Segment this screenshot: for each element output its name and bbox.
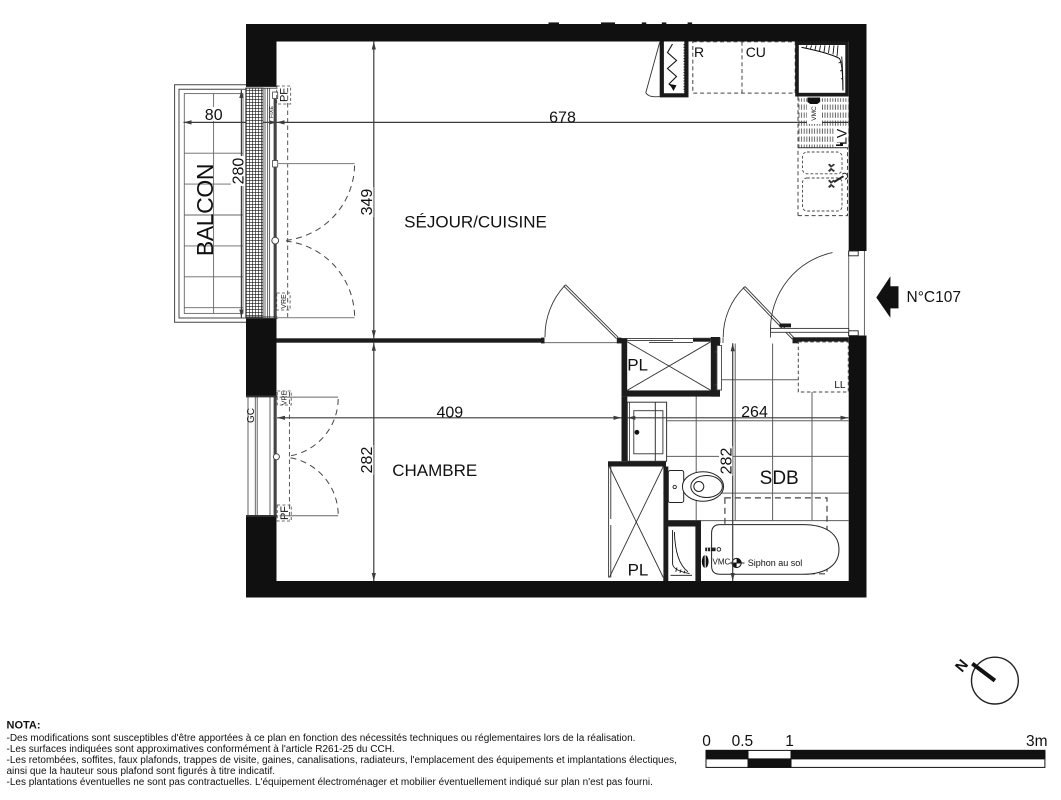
svg-text:CHAMBRE: CHAMBRE <box>392 461 477 480</box>
svg-text:-Les plantations éventuelles n: -Les plantations éventuelles ne sont pas… <box>7 777 653 788</box>
svg-text:1: 1 <box>785 733 794 750</box>
svg-text:FIXE: FIXE <box>269 106 275 119</box>
svg-text:282: 282 <box>718 448 735 475</box>
svg-text:GC: GC <box>246 408 257 423</box>
svg-text:BALCON: BALCON <box>192 164 218 256</box>
svg-text:0.5: 0.5 <box>732 733 754 750</box>
svg-text:409: 409 <box>436 404 463 421</box>
svg-text:PF: PF <box>279 88 291 102</box>
svg-text:VMC: VMC <box>811 106 818 121</box>
svg-text:SÉJOUR/CUISINE: SÉJOUR/CUISINE <box>404 212 547 231</box>
svg-text:PF: PF <box>279 506 291 520</box>
svg-text:-Des modifications sont suscep: -Des modifications sont susceptibles d'ê… <box>7 733 636 744</box>
svg-text:ainsi que la hauteur sous plaf: ainsi que la hauteur sous plafond sont f… <box>7 766 276 777</box>
svg-text:3m: 3m <box>1026 733 1048 750</box>
svg-text:VRE: VRE <box>281 294 288 309</box>
svg-text:LV: LV <box>834 128 850 145</box>
svg-text:Siphon au sol: Siphon au sol <box>748 558 803 568</box>
svg-text:264: 264 <box>741 404 768 421</box>
svg-text:SDB: SDB <box>760 468 799 489</box>
svg-text:VRE: VRE <box>282 390 289 405</box>
svg-text:PL: PL <box>627 356 648 375</box>
svg-text:LL: LL <box>834 380 846 391</box>
svg-text:80: 80 <box>205 107 223 124</box>
svg-text:280: 280 <box>230 158 247 185</box>
svg-text:R: R <box>694 44 704 60</box>
svg-text:N°C107: N°C107 <box>907 289 961 306</box>
svg-text:282: 282 <box>359 447 376 474</box>
svg-text:-Les retombées, soffites, faux: -Les retombées, soffites, faux plafonds,… <box>7 755 677 766</box>
svg-text:CU: CU <box>746 44 766 60</box>
svg-text:VMC: VMC <box>713 558 731 567</box>
svg-text:0: 0 <box>702 733 711 750</box>
svg-text:678: 678 <box>549 109 576 126</box>
svg-text:NOTA:: NOTA: <box>7 720 41 732</box>
svg-text:PL: PL <box>628 561 649 580</box>
svg-text:-Les surfaces indiquées sont a: -Les surfaces indiquées sont approximati… <box>7 744 395 755</box>
svg-text:349: 349 <box>359 189 376 216</box>
